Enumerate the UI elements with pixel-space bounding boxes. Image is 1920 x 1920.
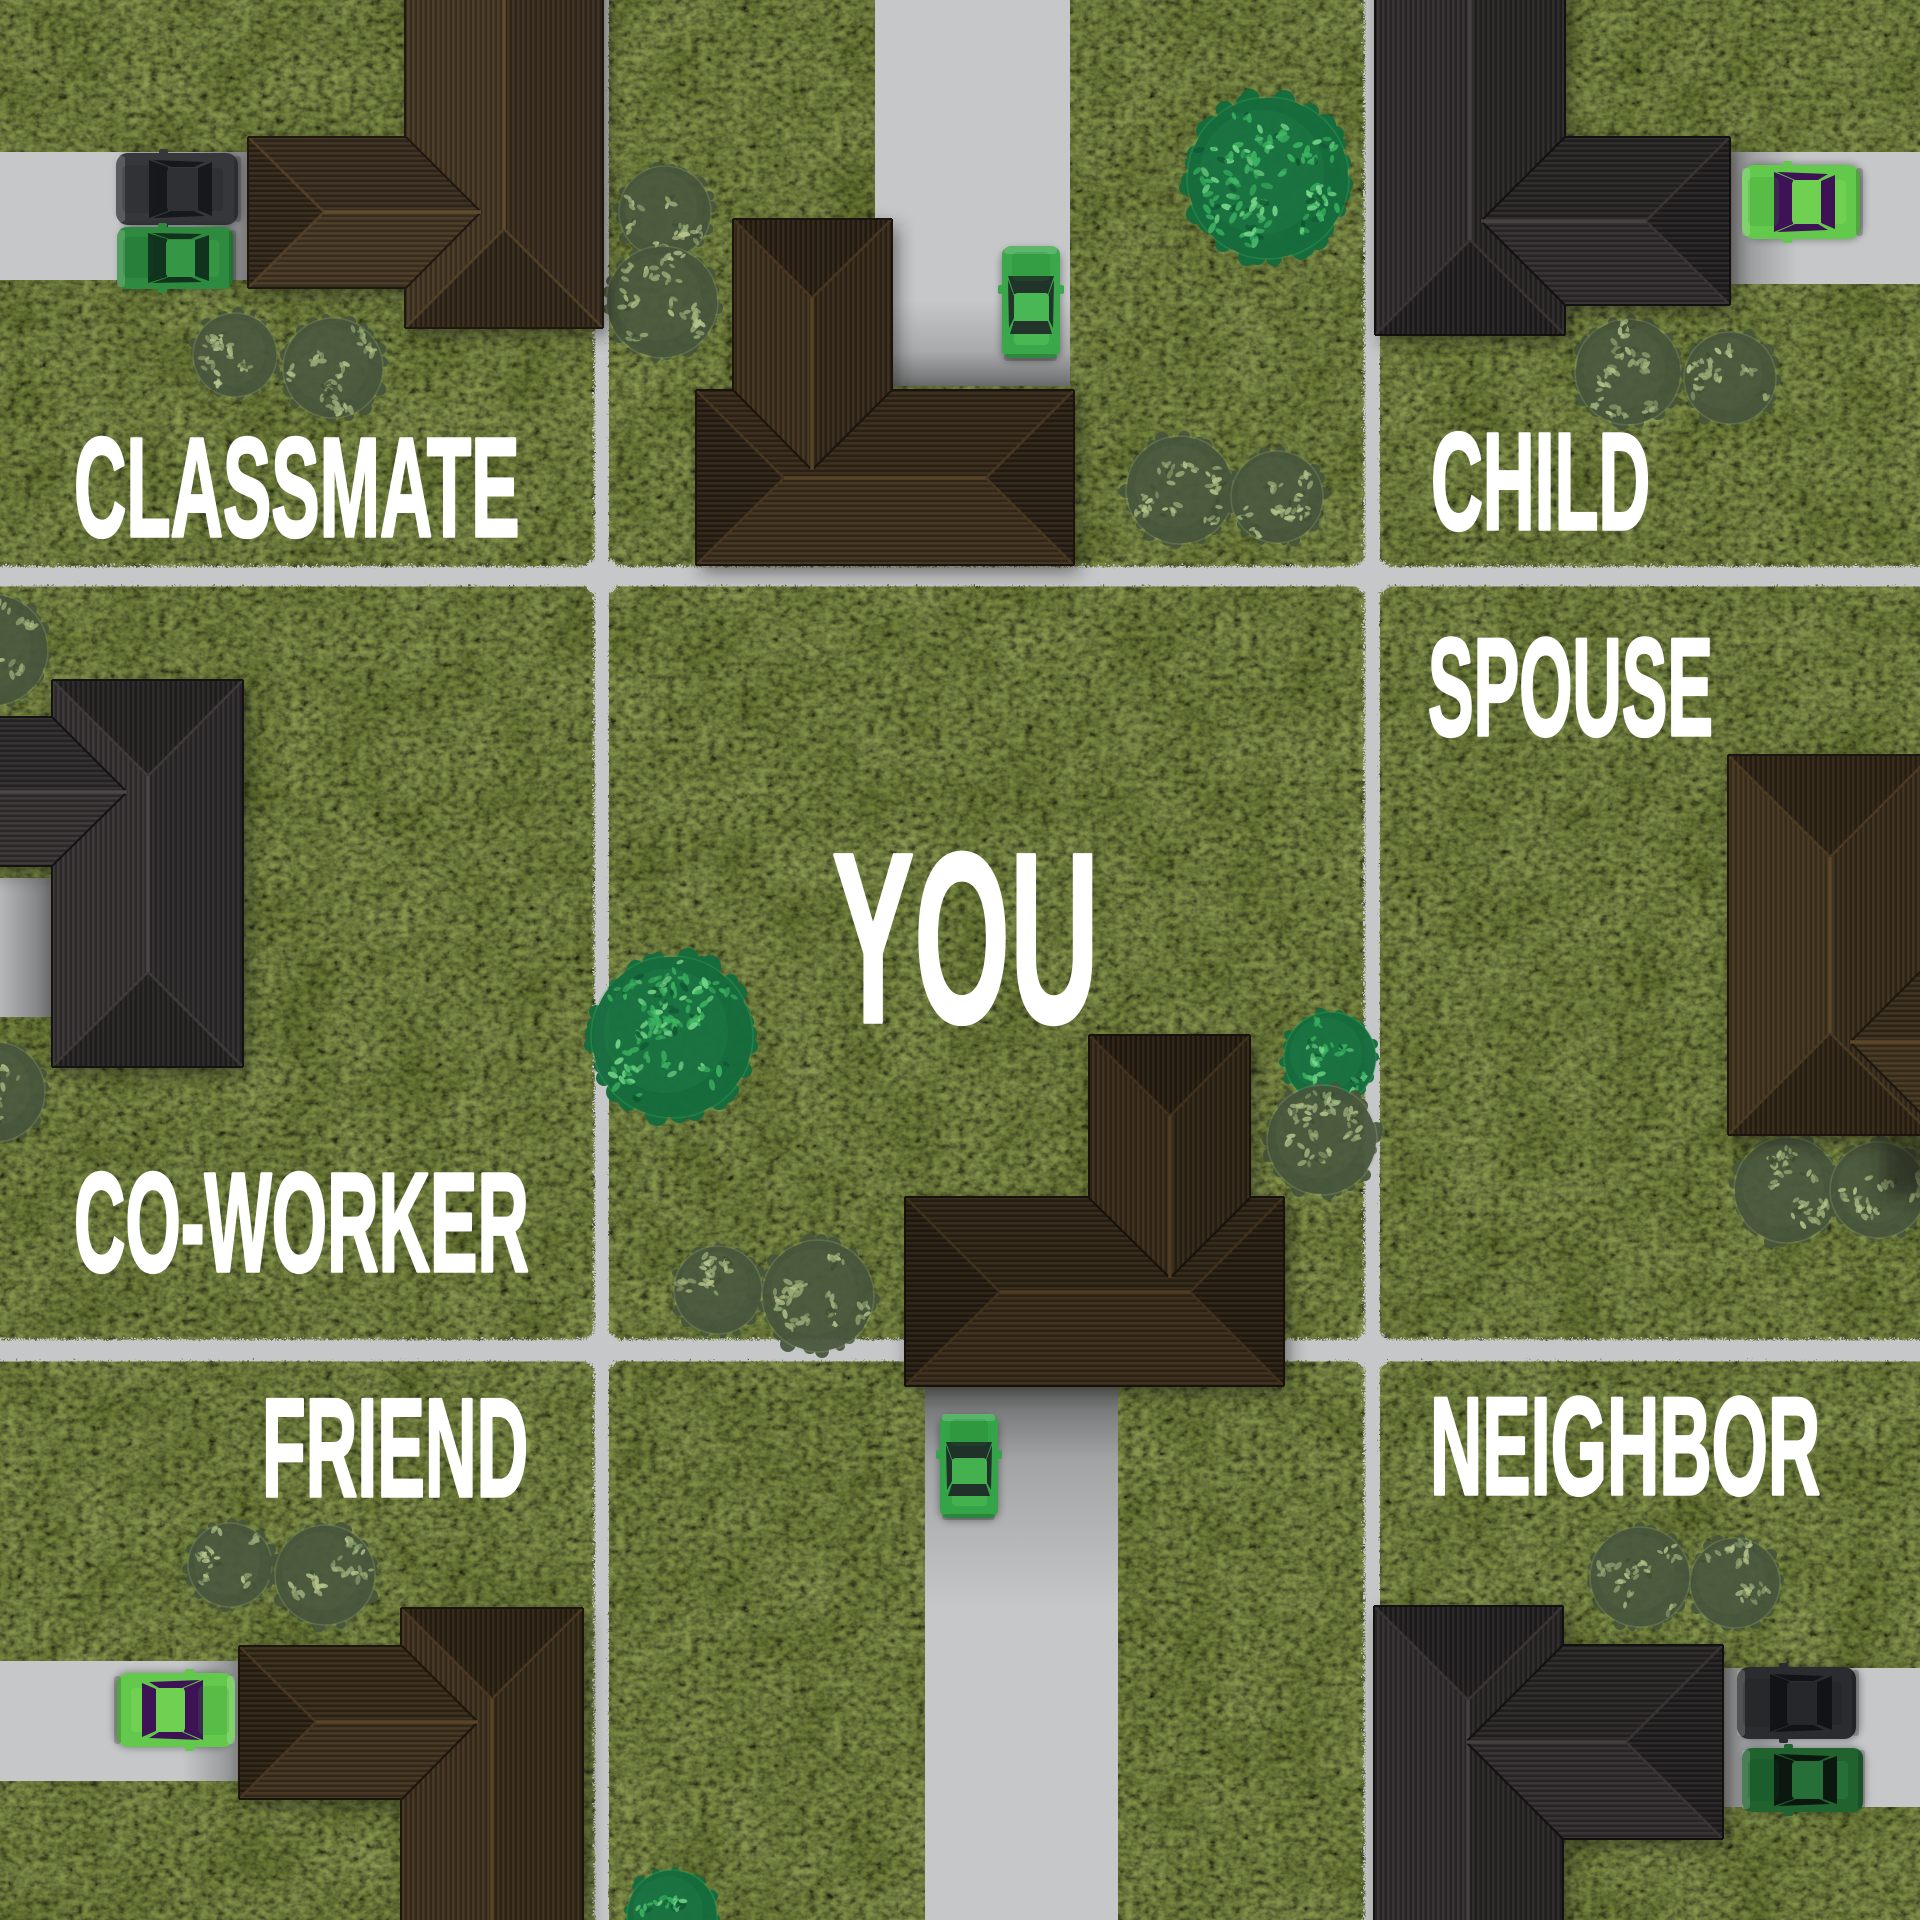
svg-text:YOU: YOU [832,803,1099,1074]
svg-text:CO-WORKER: CO-WORKER [74,1144,529,1302]
svg-text:NEIGHBOR: NEIGHBOR [1430,1370,1820,1524]
svg-text:CHILD: CHILD [1431,405,1650,559]
svg-text:CLASSMATE: CLASSMATE [74,409,520,566]
svg-text:SPOUSE: SPOUSE [1428,611,1713,766]
svg-text:FRIEND: FRIEND [262,1369,528,1526]
